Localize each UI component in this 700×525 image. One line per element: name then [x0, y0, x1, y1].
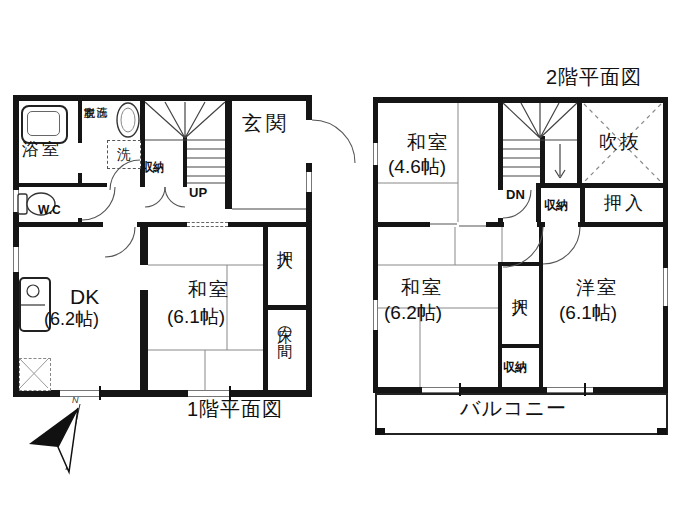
room-label-void: 吹抜 [599, 132, 641, 152]
window [663, 268, 668, 306]
wall-segment [183, 136, 187, 187]
room-label-entrance: 玄関 [242, 113, 290, 134]
wall-segment [306, 95, 312, 120]
floor2-title: 2階平面図 [546, 67, 642, 88]
wall-segment [306, 163, 312, 397]
room-size-youshitsu: (6.1帖) [559, 303, 617, 323]
wall-segment [78, 218, 82, 227]
wall-segment [13, 95, 19, 397]
room-label-oshiire2a: 押入 [604, 194, 646, 213]
door-opening [504, 222, 537, 227]
wall-segment [498, 262, 543, 266]
window [373, 143, 378, 165]
room-size-washitsu1: (6.1帖) [167, 307, 225, 327]
room-label-dk: DK [70, 286, 99, 308]
room-label-oshiire2b: 押入 [511, 286, 528, 288]
room-label-youshitsu: 洋室 [576, 278, 618, 298]
room-label-storage2b: 収納 [503, 361, 527, 374]
wall-segment [225, 95, 232, 209]
room-label-storage2a: 収納 [544, 199, 568, 212]
room-label-tokonoma: 床の間 [277, 316, 293, 333]
bathtub-inner [27, 111, 60, 136]
room-size-washitsu2b: (6.2帖) [384, 303, 442, 323]
wall-segment [540, 136, 545, 188]
wall-segment [498, 97, 503, 190]
wall-segment [663, 97, 668, 393]
room-label-bathroom: 浴室 [22, 141, 62, 159]
room-label-washitsu1: 和室 [188, 280, 230, 300]
wall-segment [577, 97, 582, 188]
wall-segment [13, 390, 312, 397]
room-label-washitsu2b: 和室 [401, 278, 443, 298]
window [188, 390, 230, 397]
room-label-balcony: バルコニー [460, 398, 567, 419]
hatch-square [19, 358, 51, 391]
north-arrow-icon: N [29, 395, 80, 472]
room-label-stair-storage: 収納 [142, 161, 164, 174]
window [13, 247, 19, 272]
wall-segment [582, 183, 668, 188]
sliding-partition-opening [187, 222, 228, 227]
stairs-down-label: DN [506, 188, 525, 202]
door-opening [103, 222, 137, 227]
sliding-door-opening [430, 222, 486, 227]
wall-segment [580, 188, 585, 222]
window [306, 172, 312, 192]
washbasin-icon [117, 103, 139, 137]
window [547, 387, 593, 393]
wall-segment [498, 344, 543, 348]
room-size-washitsu2a: (4.6帖) [388, 157, 446, 177]
window [60, 390, 100, 397]
wall-segment [268, 305, 306, 310]
window [422, 387, 460, 393]
floor1-title: 1階平面図 [187, 399, 283, 420]
wall-segment [373, 97, 378, 393]
window [373, 300, 378, 330]
wall-segment [140, 227, 148, 265]
wall-segment [13, 95, 312, 101]
room-label-oshiire1: 押入 [276, 238, 293, 242]
washing-machine-box: 洗 [107, 140, 141, 169]
stairs-up-label: UP [189, 186, 207, 200]
room-label-wc: W.C [38, 204, 61, 217]
wall-segment [373, 387, 668, 393]
wall-segment [539, 227, 543, 387]
room-label-washitsu2a: 和室 [407, 133, 449, 153]
wall-segment [13, 183, 82, 187]
washer-label: 洗 [117, 147, 131, 162]
wall-segment [498, 262, 502, 387]
balcony-corner [657, 428, 667, 435]
wall-segment [373, 97, 668, 103]
balcony-corner [375, 428, 385, 435]
floorplan-image: 洗 [0, 0, 700, 525]
wall-segment [78, 95, 82, 187]
door-opening [78, 143, 82, 173]
door-opening [545, 222, 578, 227]
window [13, 190, 19, 212]
wall-segment [140, 290, 148, 390]
wall-segment [82, 183, 107, 187]
room-size-dk: (6.2帖) [44, 310, 99, 329]
